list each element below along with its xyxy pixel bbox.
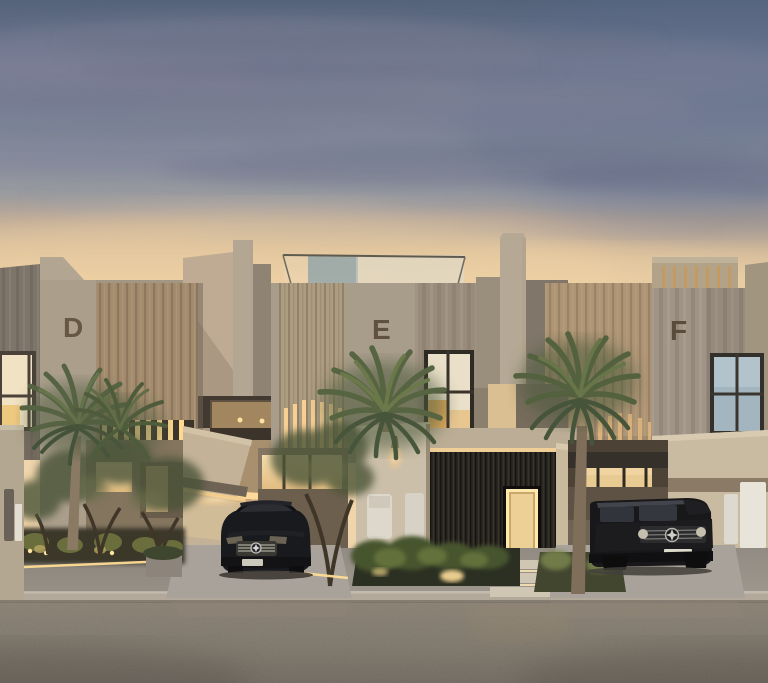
svg-text:F: F: [670, 315, 687, 346]
svg-text:D: D: [63, 312, 83, 343]
svg-text:E: E: [372, 314, 391, 345]
